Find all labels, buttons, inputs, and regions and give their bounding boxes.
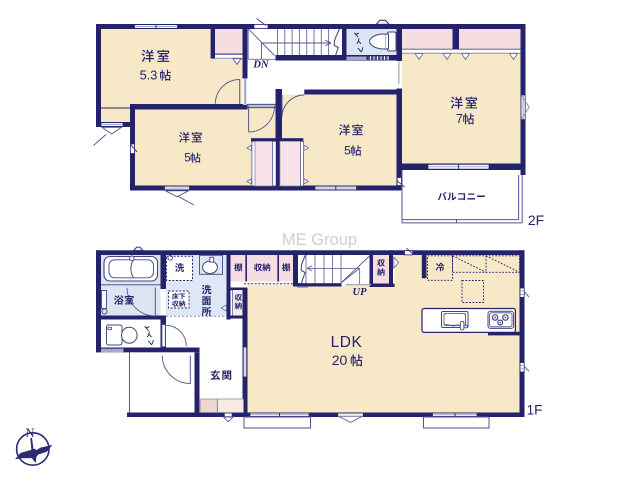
svg-text:20: 20 <box>332 352 348 368</box>
svg-text:N: N <box>25 426 34 440</box>
svg-text:7: 7 <box>456 112 463 126</box>
svg-text:1F: 1F <box>527 403 543 418</box>
svg-text:DN: DN <box>252 60 269 71</box>
svg-text:5: 5 <box>344 144 351 158</box>
svg-text:2F: 2F <box>528 212 544 228</box>
svg-text:LDK: LDK <box>331 334 363 351</box>
svg-text:ME Group: ME Group <box>282 231 357 249</box>
svg-text:UP: UP <box>353 287 368 298</box>
svg-text:5: 5 <box>184 153 190 165</box>
svg-text:5.3: 5.3 <box>140 67 158 82</box>
